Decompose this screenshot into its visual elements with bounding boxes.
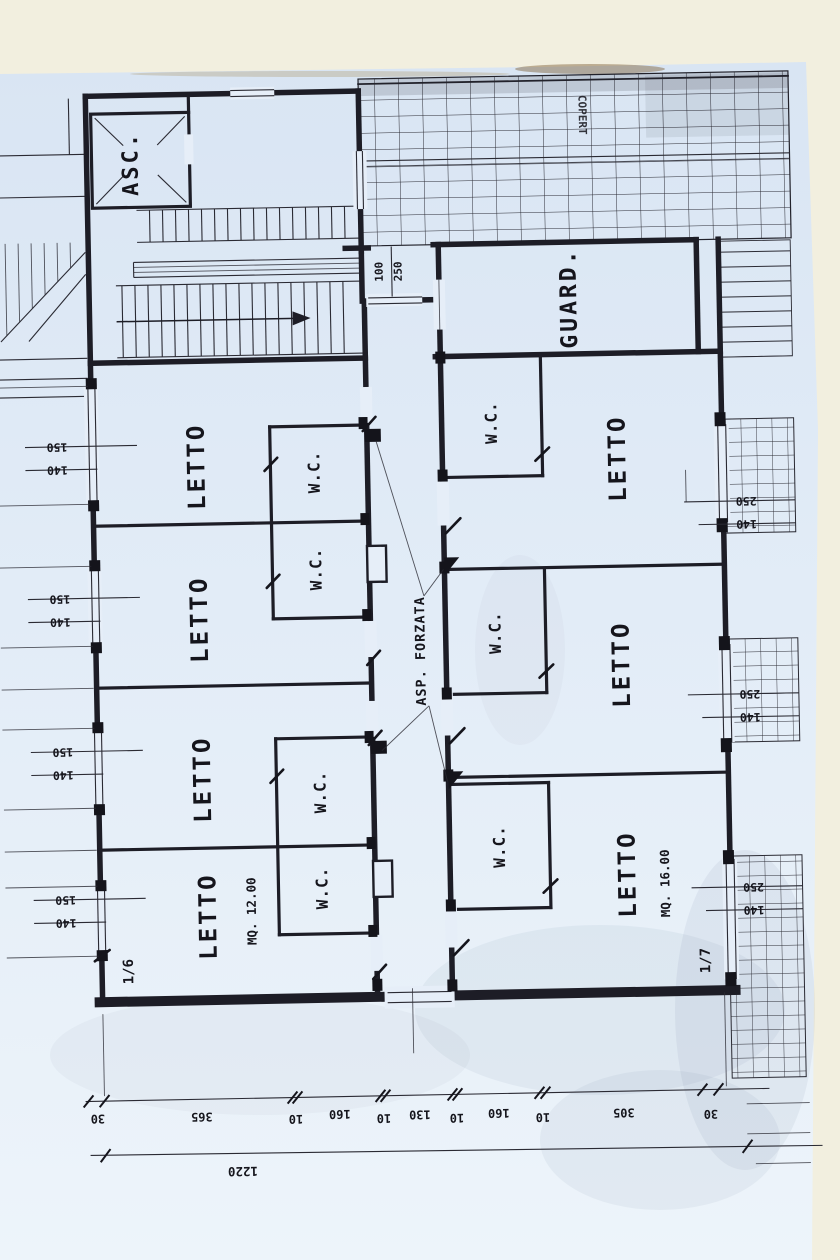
wc-label-left-4: W.C. xyxy=(312,866,332,909)
chain-dim-160b: 160 xyxy=(488,1106,510,1120)
dim-right-1-bottom: 140 xyxy=(736,517,757,531)
chain-dim-10c: 10 xyxy=(450,1111,465,1125)
dim-left-2-bottom: 140 xyxy=(50,615,71,629)
chain-dim-365: 365 xyxy=(191,1110,213,1124)
elevator-label: ASC. xyxy=(118,131,144,196)
roof-note: COPERT xyxy=(575,95,589,135)
chain-dim-30a: 30 xyxy=(91,1112,106,1126)
terrace-grid xyxy=(358,71,791,246)
area-label-right: MQ. 16.00 xyxy=(657,849,673,917)
dim-left-4-bottom: 140 xyxy=(56,916,77,930)
wardrobe-label: GUARD. xyxy=(555,247,583,349)
room-label-letto-left-1: LETTO xyxy=(182,422,212,510)
chain-dim-10a: 10 xyxy=(289,1112,304,1126)
wc-label-left-1: W.C. xyxy=(304,451,324,494)
floor-plan-svg: ASC. COPERT GUARD. ASP. FORZATA LETTO LE… xyxy=(0,0,840,1260)
dim-left-1-top: 150 xyxy=(46,440,67,454)
chain-dim-30b: 30 xyxy=(704,1107,719,1121)
chain-dim-305: 305 xyxy=(613,1105,635,1119)
scan-smudge xyxy=(515,64,665,74)
dim-right-3-top: 250 xyxy=(743,880,764,894)
scanned-floor-plan-page: ASC. COPERT GUARD. ASP. FORZATA LETTO LE… xyxy=(0,0,840,1260)
corridor-door-height: 250 xyxy=(391,261,404,281)
chain-dim-10b: 10 xyxy=(377,1111,392,1125)
vent-label: ASP. FORZATA xyxy=(412,596,430,706)
room-label-letto-left-3: LETTO xyxy=(188,735,218,823)
chain-dim-160a: 160 xyxy=(329,1107,351,1121)
room-label-letto-right-1: LETTO xyxy=(602,414,632,502)
wc-label-left-3: W.C. xyxy=(310,771,330,814)
chain-dim-130: 130 xyxy=(409,1107,431,1121)
room-label-letto-right-2: LETTO xyxy=(606,620,636,708)
wc-label-right-2: W.C. xyxy=(485,611,505,654)
room-label-letto-right-3: LETTO xyxy=(612,830,642,918)
dim-left-2-top: 150 xyxy=(49,592,70,606)
roof-hatch-strip xyxy=(720,240,792,357)
unit-number-left: 1/6 xyxy=(121,959,137,985)
dim-right-1-top: 250 xyxy=(736,494,757,508)
dim-right-2-bottom: 140 xyxy=(740,710,761,724)
room-label-letto-left-4: LETTO xyxy=(193,872,223,960)
unit-number-right: 1/7 xyxy=(698,948,714,974)
dim-left-3-top: 150 xyxy=(52,745,73,759)
wc-label-left-2: W.C. xyxy=(306,548,326,591)
dim-right-3-bottom: 140 xyxy=(743,903,764,917)
dim-left-3-bottom: 140 xyxy=(53,768,74,782)
elevator-door xyxy=(184,134,194,164)
room-label-letto-left-2: LETTO xyxy=(184,575,214,663)
wc-label-right-3: W.C. xyxy=(489,825,509,868)
dim-right-2-top: 250 xyxy=(739,687,760,701)
overall-dimension: 1220 xyxy=(228,1164,258,1180)
chain-dim-10d: 10 xyxy=(536,1110,551,1124)
area-label-left: MQ. 12.00 xyxy=(243,877,259,945)
wc-label-right-1: W.C. xyxy=(481,401,501,444)
dim-left-1-bottom: 140 xyxy=(47,463,68,477)
corridor-door-width: 100 xyxy=(373,262,386,282)
dim-left-4-top: 150 xyxy=(55,893,76,907)
